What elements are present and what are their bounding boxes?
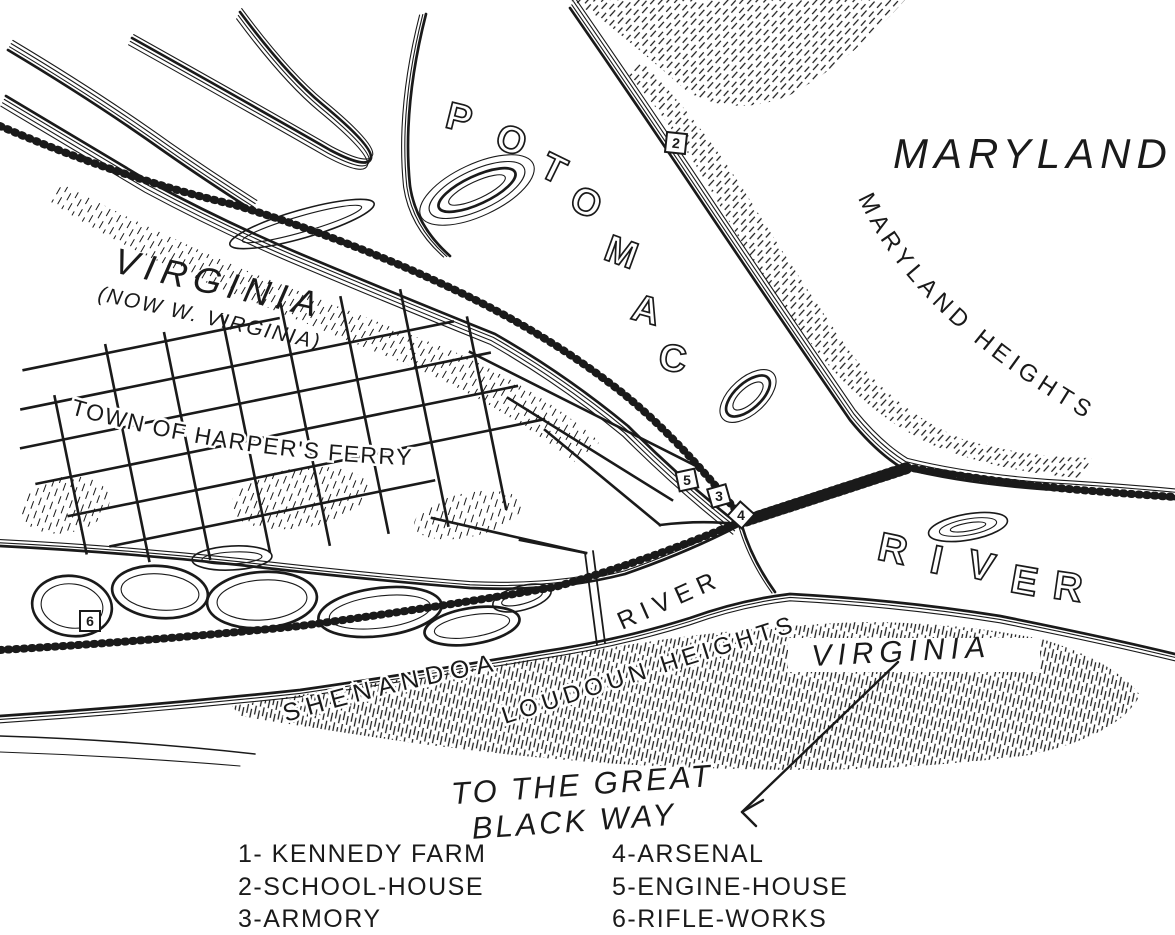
legend-item-school-house: 2-SCHOOL-HOUSE — [238, 873, 484, 901]
map-canvas: P O T O M A C R I V E R MARYLAND MARYLAN… — [0, 0, 1175, 935]
potomac-letter: T — [534, 145, 573, 193]
marker-rifle-works: 6 — [80, 611, 100, 631]
legend-item-engine-house: 5-ENGINE-HOUSE — [612, 873, 848, 901]
maryland-label: MARYLAND — [893, 130, 1173, 177]
river-letter: E — [1007, 557, 1041, 605]
lower-shore-lines — [0, 736, 255, 766]
marker-rifle-works-number: 6 — [86, 613, 94, 629]
maryland-heights-textpath: MARYLAND HEIGHTS — [852, 189, 1100, 426]
river-letter: I — [927, 538, 947, 583]
potomac-letter: C — [656, 336, 689, 381]
maryland-heights-ridge-hatching — [570, 0, 1092, 478]
potomac-island-large — [410, 140, 544, 240]
potomac-label: P O T O M A C — [442, 95, 690, 382]
marker-school-house: 2 — [665, 132, 687, 154]
annotation-group: TO THE GREAT BLACK WAY — [450, 758, 717, 847]
potomac-letter: A — [627, 287, 664, 335]
potomac-island-middle — [711, 360, 786, 432]
marker-engine-house-number: 5 — [683, 472, 691, 488]
marker-armory-number: 3 — [715, 488, 723, 504]
potomac-letter: M — [599, 228, 643, 278]
legend-item-kennedy-farm: 1- KENNEDY FARM — [238, 840, 486, 868]
river-letter: R — [1050, 563, 1085, 611]
marker-engine-house: 5 — [676, 469, 699, 492]
potomac-letter: O — [564, 178, 608, 228]
upland-hairpin-ridge — [129, 9, 373, 170]
potomac-letter: P — [442, 95, 477, 142]
shenandoah-bridge — [585, 551, 605, 645]
confluence-point-bank — [739, 526, 775, 593]
river-letter: V — [963, 542, 999, 591]
river-letter: R — [874, 525, 912, 574]
legend-item-armory: 3-ARMORY — [238, 905, 382, 933]
legend-item-rifle-works: 6-RIFLE-WORKS — [612, 905, 827, 933]
shenandoah-north-bank — [0, 520, 738, 589]
marker-armory: 3 — [707, 484, 731, 508]
marker-arsenal-number: 4 — [737, 507, 745, 523]
potomac-railroad-bridge — [745, 465, 909, 524]
maryland-heights-label: MARYLAND HEIGHTS — [852, 189, 1100, 426]
map-legend: 1- KENNEDY FARM 2-SCHOOL-HOUSE 3-ARMORY … — [238, 840, 848, 933]
arrowhead-icon — [742, 800, 763, 826]
legend-item-arsenal: 4-ARSENAL — [612, 840, 764, 868]
potomac-letter: O — [490, 116, 532, 166]
harpers-ferry-map: P O T O M A C R I V E R MARYLAND MARYLAN… — [0, 0, 1175, 935]
